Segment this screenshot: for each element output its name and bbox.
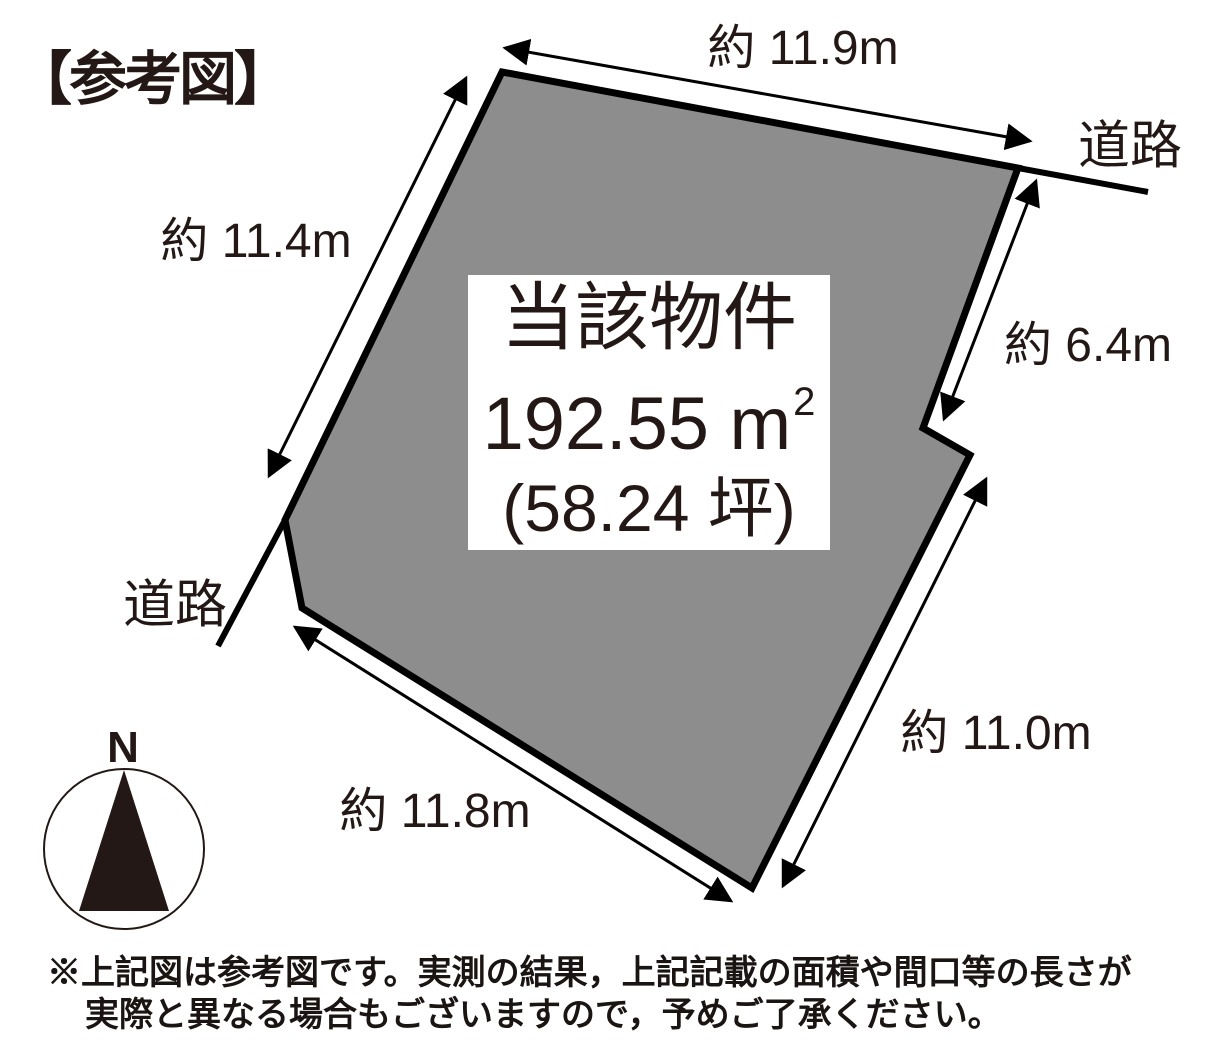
parcel-info-box: 当該物件 192.55 m2 (58.24 坪) [468, 275, 830, 550]
road-label-top-right: 道路 [1078, 104, 1182, 179]
parcel-area-sqm: 192.55 m2 [483, 360, 816, 466]
parcel-area-value: 192.55 m [483, 382, 792, 465]
road-label-left: 道路 [123, 563, 227, 638]
dimension-label-right-upper: 約 6.4m [1004, 305, 1172, 375]
disclaimer-line-2: 実際と異なる場合もございますので，予めご了承ください。 [85, 994, 1002, 1036]
parcel-area-superscript: 2 [793, 380, 815, 424]
dimension-label-top: 約 11.9m [707, 8, 898, 78]
parcel-name: 当該物件 [501, 276, 797, 360]
parcel-area-tsubo: (58.24 坪) [502, 466, 795, 550]
disclaimer-line-1: ※上記図は参考図です。実測の結果，上記記載の面積や間口等の長さが [47, 952, 1132, 994]
figure-title: 【参考図】 [14, 32, 289, 116]
road-line-left [218, 520, 285, 646]
dimension-label-left: 約 11.4m [160, 201, 351, 271]
land-plot-reference-figure: 【参考図】 約 11.9m 約 11.4m 約 6.4m 約 11.0m 約 1… [0, 0, 1219, 1055]
dimension-label-right-lower: 約 11.0m [900, 693, 1091, 763]
compass-north-label: N [107, 723, 139, 773]
dimension-label-bottom: 約 11.8m [339, 771, 530, 841]
